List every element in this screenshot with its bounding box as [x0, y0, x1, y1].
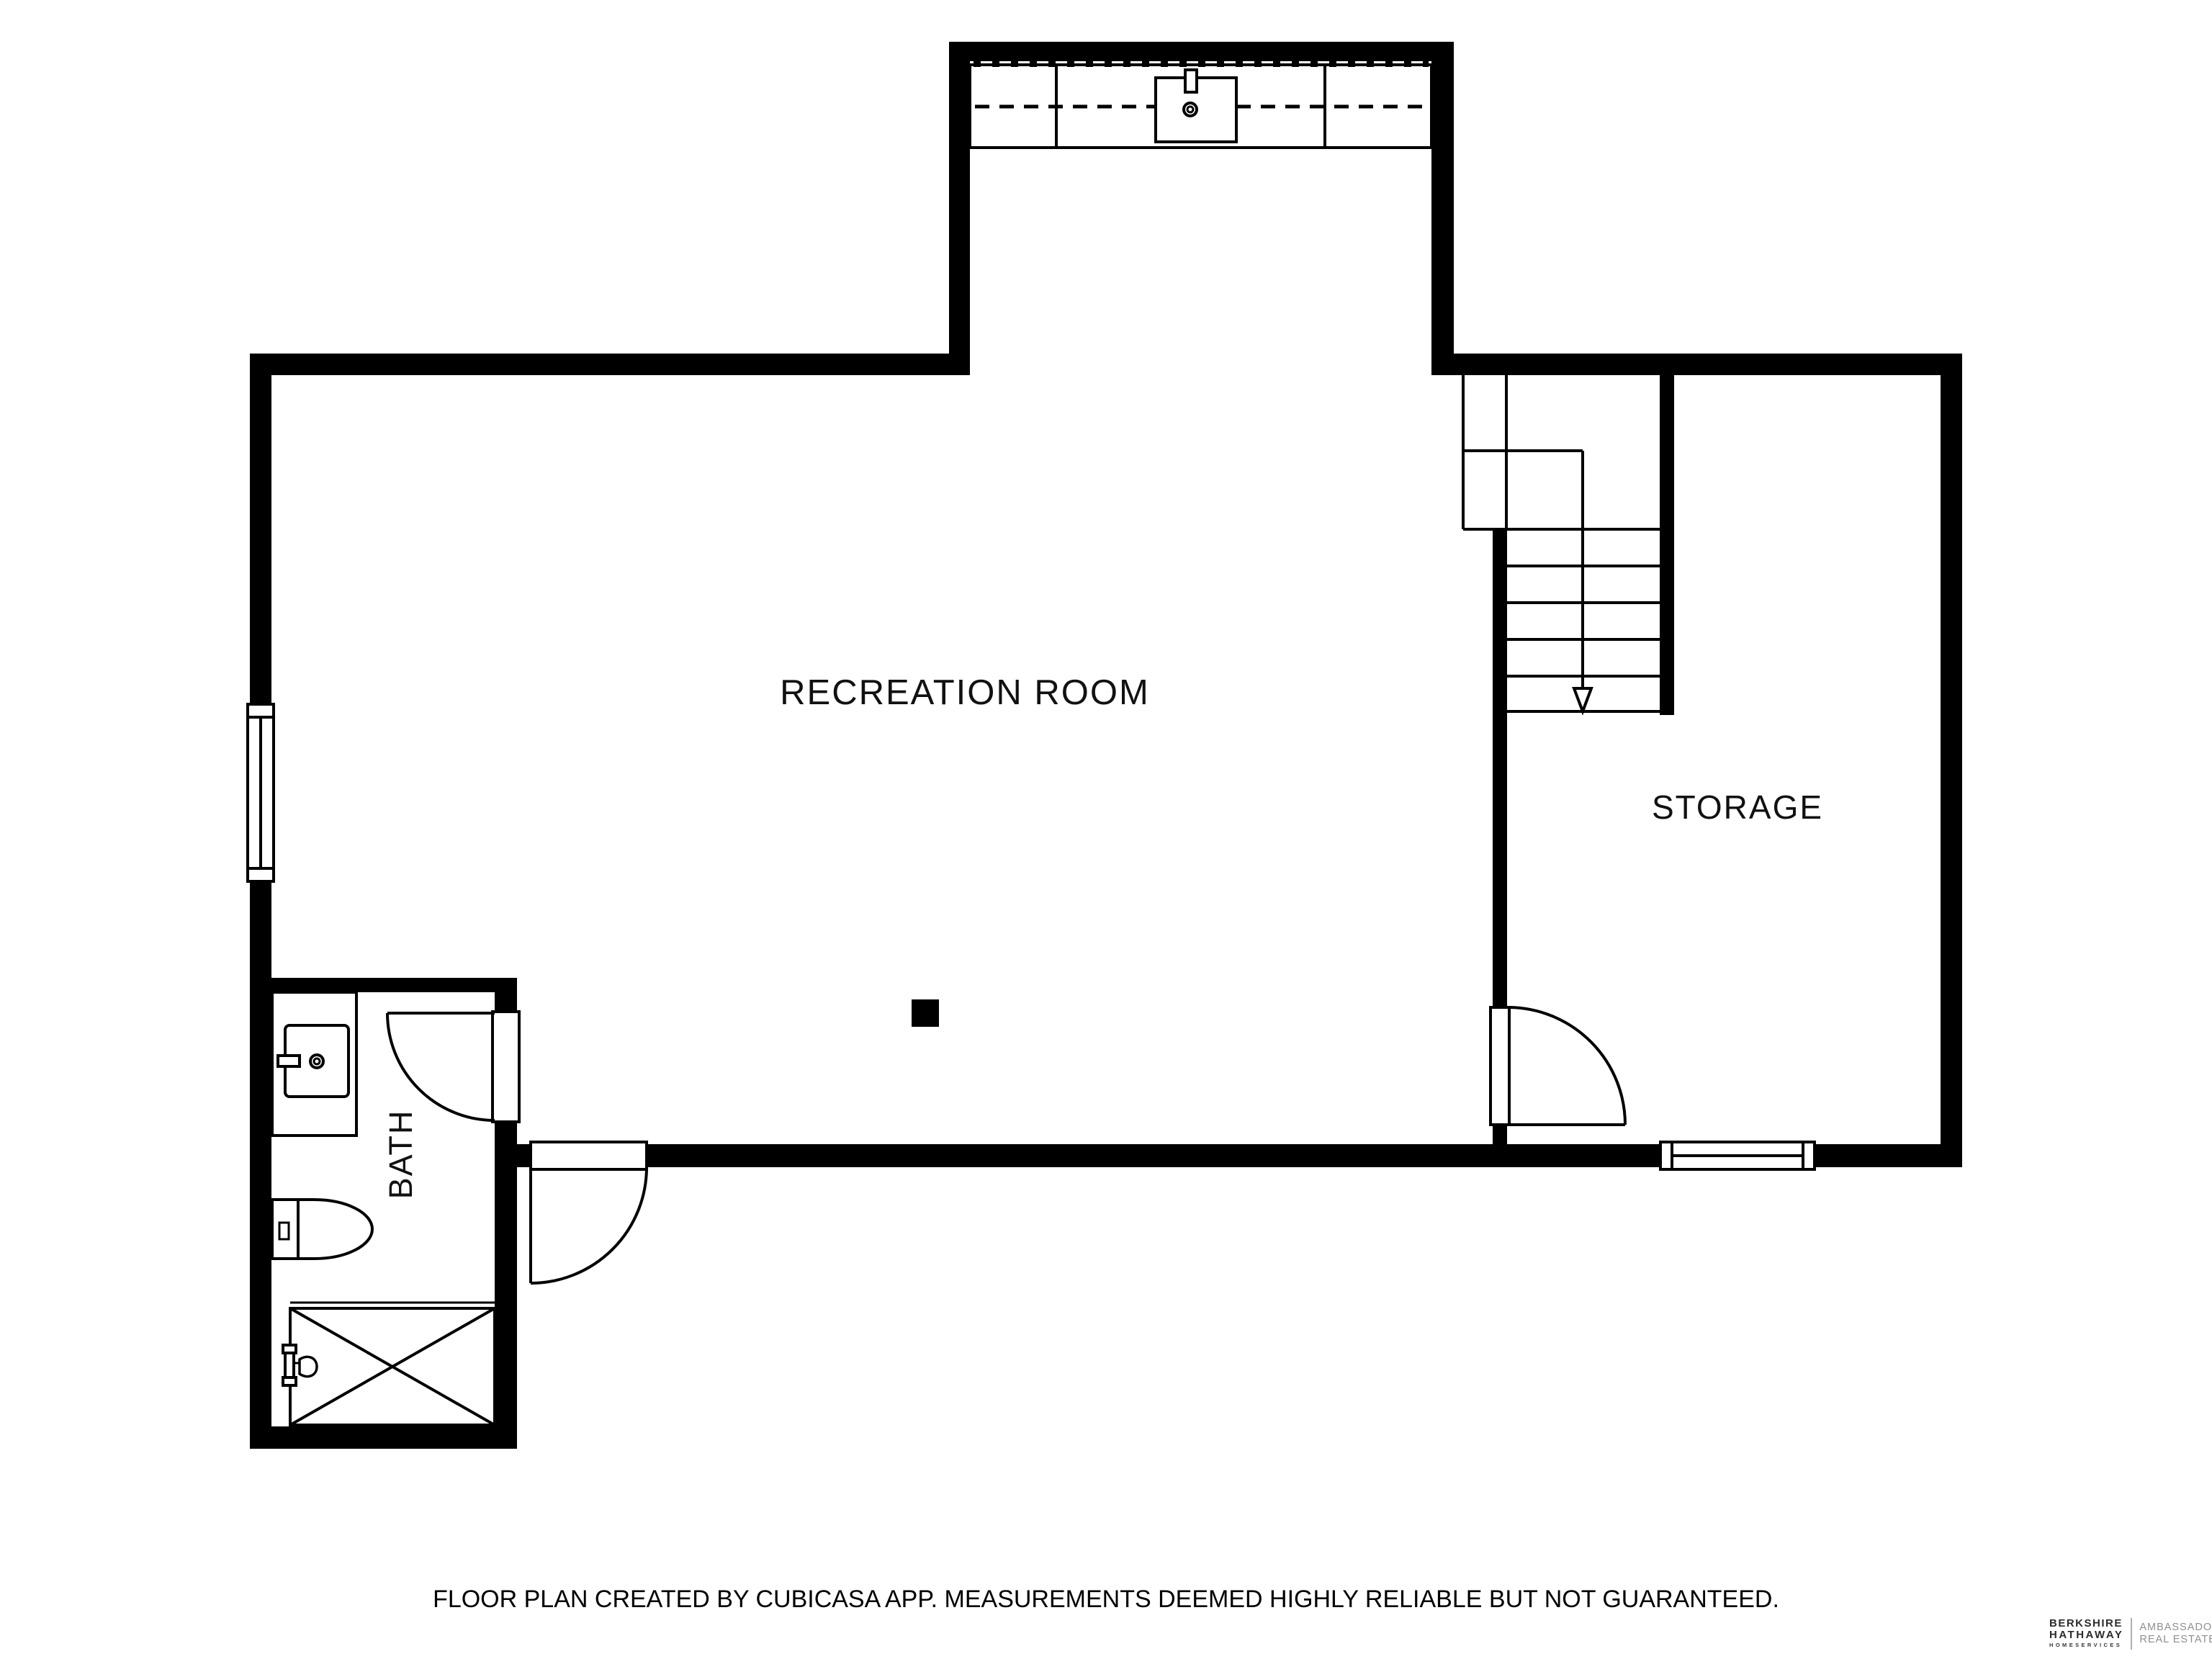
- logo-division-line1: AMBASSADOR: [2139, 1622, 2212, 1634]
- toilet-flush-button: [279, 1223, 289, 1239]
- logo-brand-line1: BERKSHIRE: [2049, 1618, 2123, 1629]
- storage-door-opening: [1491, 1007, 1509, 1125]
- toilet-bowl: [298, 1200, 372, 1259]
- berkshire-hathaway-logo: BERKSHIRE HATHAWAY HOMESERVICES AMBASSAD…: [2049, 1618, 2212, 1650]
- storage-door-swing-arc: [1509, 1007, 1625, 1125]
- kitchen-counter: [970, 64, 1431, 148]
- kitchen-sink-icon: [1156, 70, 1236, 142]
- floor-plan-page: RECREATION ROOM STORAGE BATH FLOOR PLAN …: [0, 0, 2212, 1659]
- wall-left: [250, 354, 271, 1449]
- walls: [250, 42, 1962, 1449]
- shower-head-icon: [283, 1345, 317, 1385]
- logo-division-line2: REAL ESTATE: [2139, 1634, 2212, 1646]
- bath-door-opening: [493, 1012, 519, 1122]
- wall-bath-bottom: [250, 1426, 517, 1449]
- logo-division-column: AMBASSADOR REAL ESTATE: [2139, 1618, 2212, 1650]
- storage-door: [1509, 1007, 1625, 1125]
- wall-kitchen-nook-left: [949, 42, 970, 375]
- disclaimer-text: FLOOR PLAN CREATED BY CUBICASA APP. MEAS…: [0, 1586, 2212, 1614]
- vanity-sink-icon: [278, 1025, 349, 1097]
- logo-divider: [2131, 1618, 2132, 1650]
- vanity-faucet-icon: [278, 1056, 300, 1066]
- exterior-door: [531, 1167, 647, 1283]
- wall-bath-top: [250, 978, 517, 992]
- wall-kitchen-nook-right: [1431, 42, 1454, 375]
- room-label-bath: BATH: [382, 1110, 419, 1200]
- logo-brand-line2: HATHAWAY: [2049, 1629, 2123, 1641]
- exterior-door-opening: [531, 1142, 647, 1169]
- room-label-storage: STORAGE: [1652, 788, 1823, 826]
- bath-door: [387, 1013, 495, 1120]
- room-label-recreation: RECREATION ROOM: [780, 673, 1150, 712]
- floor-plan-drawing: RECREATION ROOM STORAGE BATH: [0, 0, 2212, 1659]
- stairs: [1463, 375, 1660, 711]
- window-bottom: [1660, 1142, 1815, 1169]
- wall-top-right: [1431, 354, 1962, 375]
- logo-brand-column: BERKSHIRE HATHAWAY HOMESERVICES: [2049, 1618, 2123, 1650]
- stairs-down-arrow-icon: [1574, 688, 1591, 711]
- wall-kitchen-nook-top: [949, 42, 1454, 61]
- wall-stairs-right: [1660, 375, 1674, 715]
- bathroom-vanity: [272, 992, 356, 1136]
- logo-brand-line3: HOMESERVICES: [2049, 1641, 2123, 1650]
- wall-right: [1941, 354, 1962, 1167]
- shower-icon: [283, 1303, 495, 1425]
- support-post: [912, 999, 939, 1027]
- toilet-tank: [272, 1200, 298, 1259]
- kitchen-faucet-icon: [1185, 70, 1197, 92]
- exterior-door-swing-arc: [531, 1167, 647, 1283]
- wall-top-left: [250, 354, 970, 375]
- toilet-icon: [272, 1200, 372, 1259]
- shower-pan-cross: [290, 1308, 495, 1425]
- bath-door-swing-arc: [387, 1013, 495, 1120]
- window-left: [248, 704, 274, 881]
